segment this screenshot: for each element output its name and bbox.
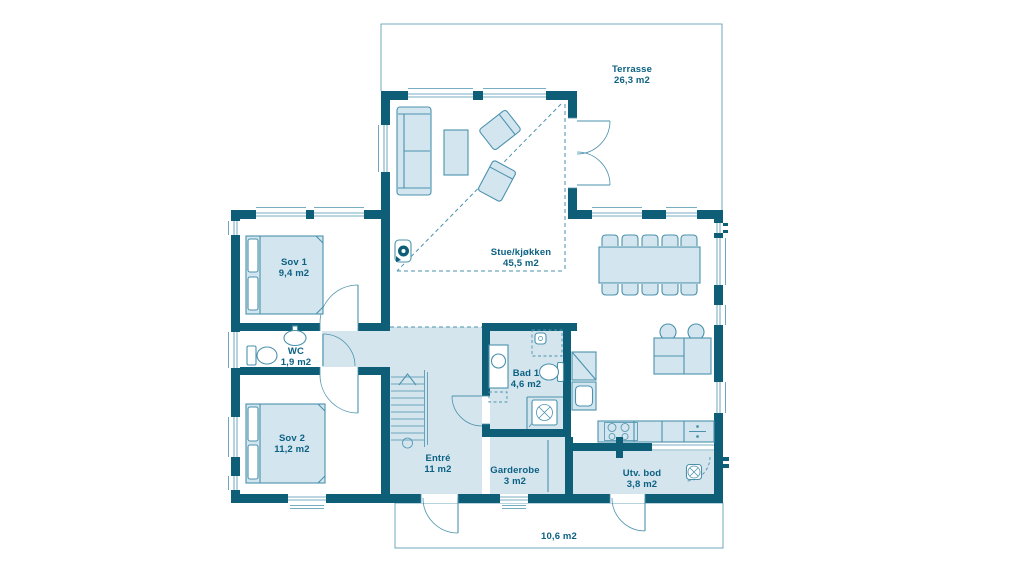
wood-stove-icon xyxy=(395,240,411,262)
toilet-icon xyxy=(540,363,564,382)
sofa-icon xyxy=(397,107,431,195)
utv-bod-door xyxy=(610,494,645,531)
armchair-icon xyxy=(478,160,517,202)
window xyxy=(229,476,241,490)
kitchen xyxy=(572,324,714,458)
room-name: Utv. bod xyxy=(623,468,662,479)
room-area: 10,6 m2 xyxy=(541,531,577,542)
room-area: 11 m2 xyxy=(424,464,451,475)
window xyxy=(229,221,241,235)
armchair-icon xyxy=(479,109,522,150)
kitchen-island-icon xyxy=(654,324,711,374)
room-label-terrasse: Terrasse 26,3 m2 xyxy=(612,64,652,86)
window xyxy=(714,305,726,325)
window xyxy=(714,223,723,233)
window xyxy=(256,208,306,220)
room-area: 26,3 m2 xyxy=(614,75,650,86)
room-name: Entré xyxy=(425,453,450,464)
window xyxy=(229,417,241,457)
kitchen-sink-icon xyxy=(572,382,596,410)
dining-table-icon xyxy=(599,247,700,283)
room-area: 4,6 m2 xyxy=(511,379,541,390)
room-label-sov2: Sov 2 11,2 m2 xyxy=(274,433,309,455)
room-label-utv-bod: Utv. bod 3,8 m2 xyxy=(623,468,662,490)
window xyxy=(483,89,546,101)
toilet-icon xyxy=(247,346,277,365)
window xyxy=(288,494,326,509)
window xyxy=(314,208,364,220)
room-label-entre: Entré 11 m2 xyxy=(424,453,451,475)
room-area: 3,8 m2 xyxy=(627,479,657,490)
room-area: 9,4 m2 xyxy=(279,268,309,279)
room-label-sov1: Sov 1 9,4 m2 xyxy=(279,257,309,279)
dining-set xyxy=(599,235,700,295)
room-label-stue-kjokken: Stue/kjøkken 45,5 m2 xyxy=(491,247,551,269)
terrace-double-door xyxy=(568,118,610,188)
floorplan-drawing: Terrasse 26,3 m2 Stue/kjøkken 45,5 m2 So… xyxy=(0,0,1024,576)
window xyxy=(714,238,726,285)
coffee-table-icon xyxy=(444,130,468,175)
room-area: 11,2 m2 xyxy=(274,444,309,455)
corner-cabinet-icon xyxy=(572,352,596,380)
window xyxy=(408,89,473,101)
room-name: Terrasse xyxy=(612,64,652,75)
room-label-wc: WC 1,9 m2 xyxy=(281,346,311,368)
window xyxy=(592,208,642,220)
window xyxy=(714,382,726,413)
room-name: Sov 1 xyxy=(281,257,308,268)
room-name: WC xyxy=(288,346,304,357)
floorplan-page: Terrasse 26,3 m2 Stue/kjøkken 45,5 m2 So… xyxy=(0,0,1024,576)
room-name: Bad 1 xyxy=(513,368,540,379)
room-label-uteareal: 10,6 m2 xyxy=(541,531,577,542)
window xyxy=(500,494,528,509)
room-label-bad1: Bad 1 4,6 m2 xyxy=(511,368,541,390)
terrace-outline xyxy=(381,24,722,211)
room-name: Garderobe xyxy=(490,465,539,476)
window xyxy=(379,125,391,172)
sov1-door xyxy=(320,285,358,331)
window xyxy=(666,208,697,220)
window xyxy=(229,332,241,368)
sov2-door xyxy=(320,367,358,413)
room-name: Stue/kjøkken xyxy=(491,247,551,258)
room-area: 1,9 m2 xyxy=(281,357,311,368)
room-name: Sov 2 xyxy=(279,433,305,444)
entrance-door xyxy=(421,494,458,533)
room-area: 45,5 m2 xyxy=(503,258,539,269)
room-area: 3 m2 xyxy=(504,476,526,487)
